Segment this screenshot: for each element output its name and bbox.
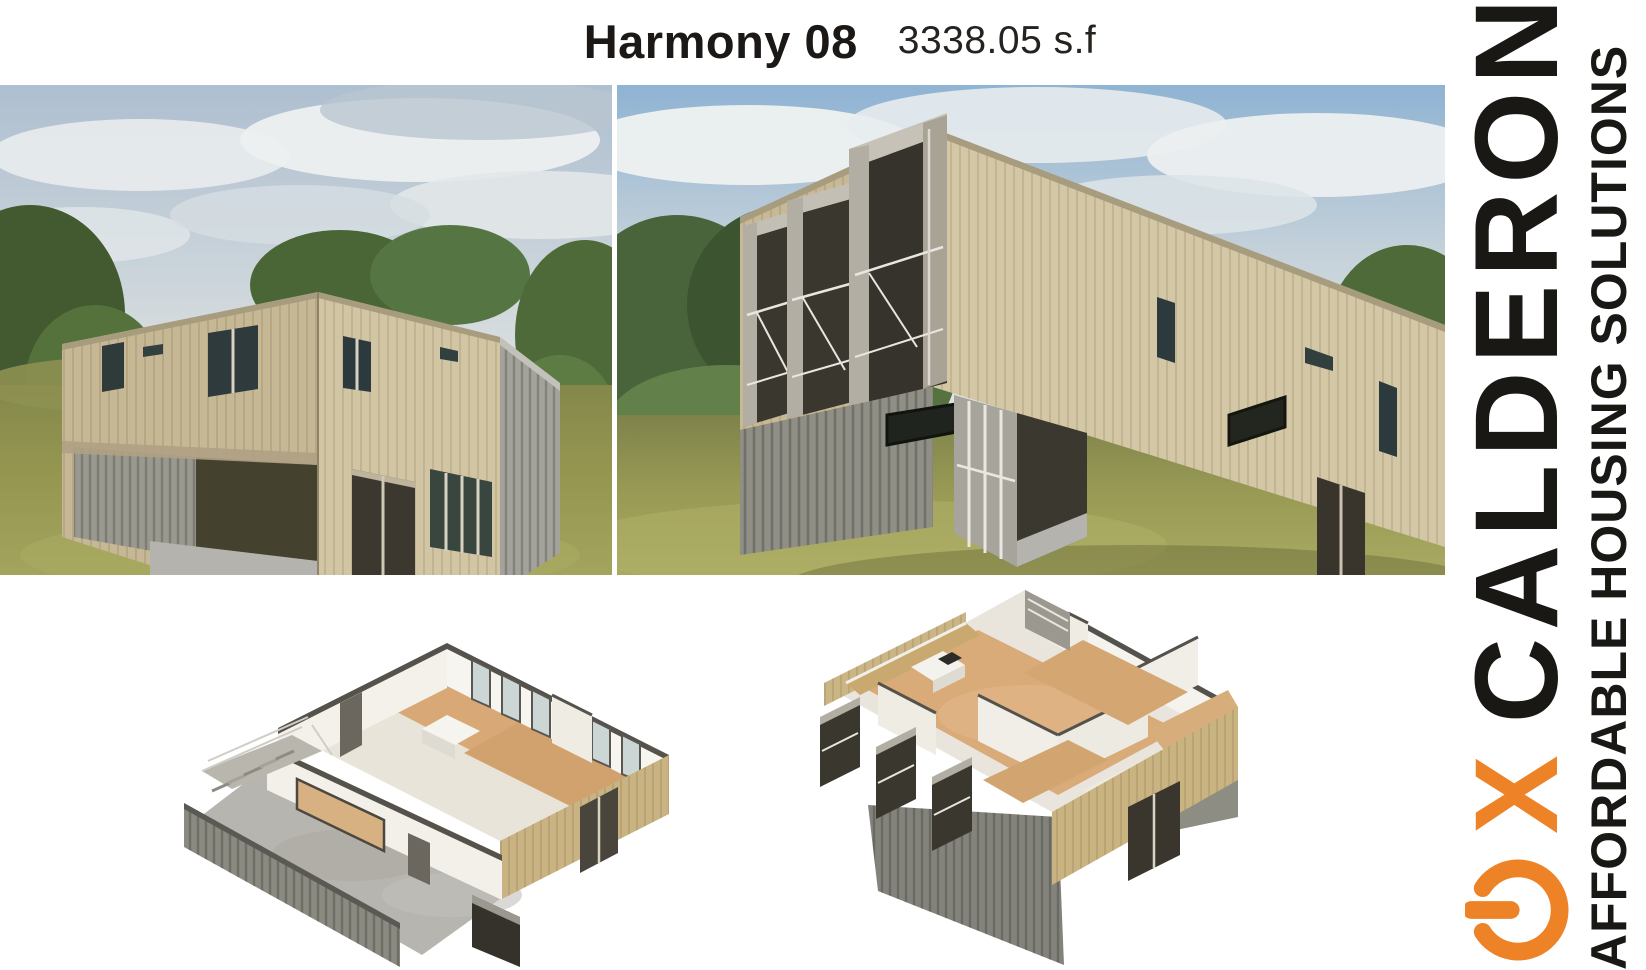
- brand-wordmark-group: X CALDERON: [1442, 0, 1592, 970]
- balcony-pocket-3: [849, 113, 947, 407]
- brand-tagline: AFFORDABLE HOUSING SOLUTIONS: [1572, 0, 1646, 970]
- exterior-render-right: [617, 85, 1445, 575]
- exterior-render-left: [0, 85, 612, 575]
- floorplan-first-scene: [172, 555, 702, 970]
- power-icon: [1465, 858, 1569, 962]
- brand-mark-x: X: [1449, 747, 1585, 834]
- render-right-scene: [617, 85, 1445, 575]
- floorplan-second-scene: [728, 555, 1258, 970]
- render-left-scene: [0, 85, 612, 575]
- floorplan-second-floor: [728, 555, 1258, 970]
- brand-sidebar: X CALDERON AFFORDABLE HOUSING SOLUTIONS: [1447, 0, 1646, 970]
- brand-wordmark: CALDERON: [1449, 0, 1585, 723]
- house: [62, 292, 560, 575]
- area-label: 3338.05 s.f: [898, 19, 1096, 63]
- presentation-sheet: Harmony 08 3338.05 s.f: [0, 0, 1646, 970]
- floorplan-first-floor: [172, 555, 702, 970]
- title-bar: Harmony 08 3338.05 s.f: [420, 0, 1260, 82]
- page-title: Harmony 08: [584, 14, 858, 69]
